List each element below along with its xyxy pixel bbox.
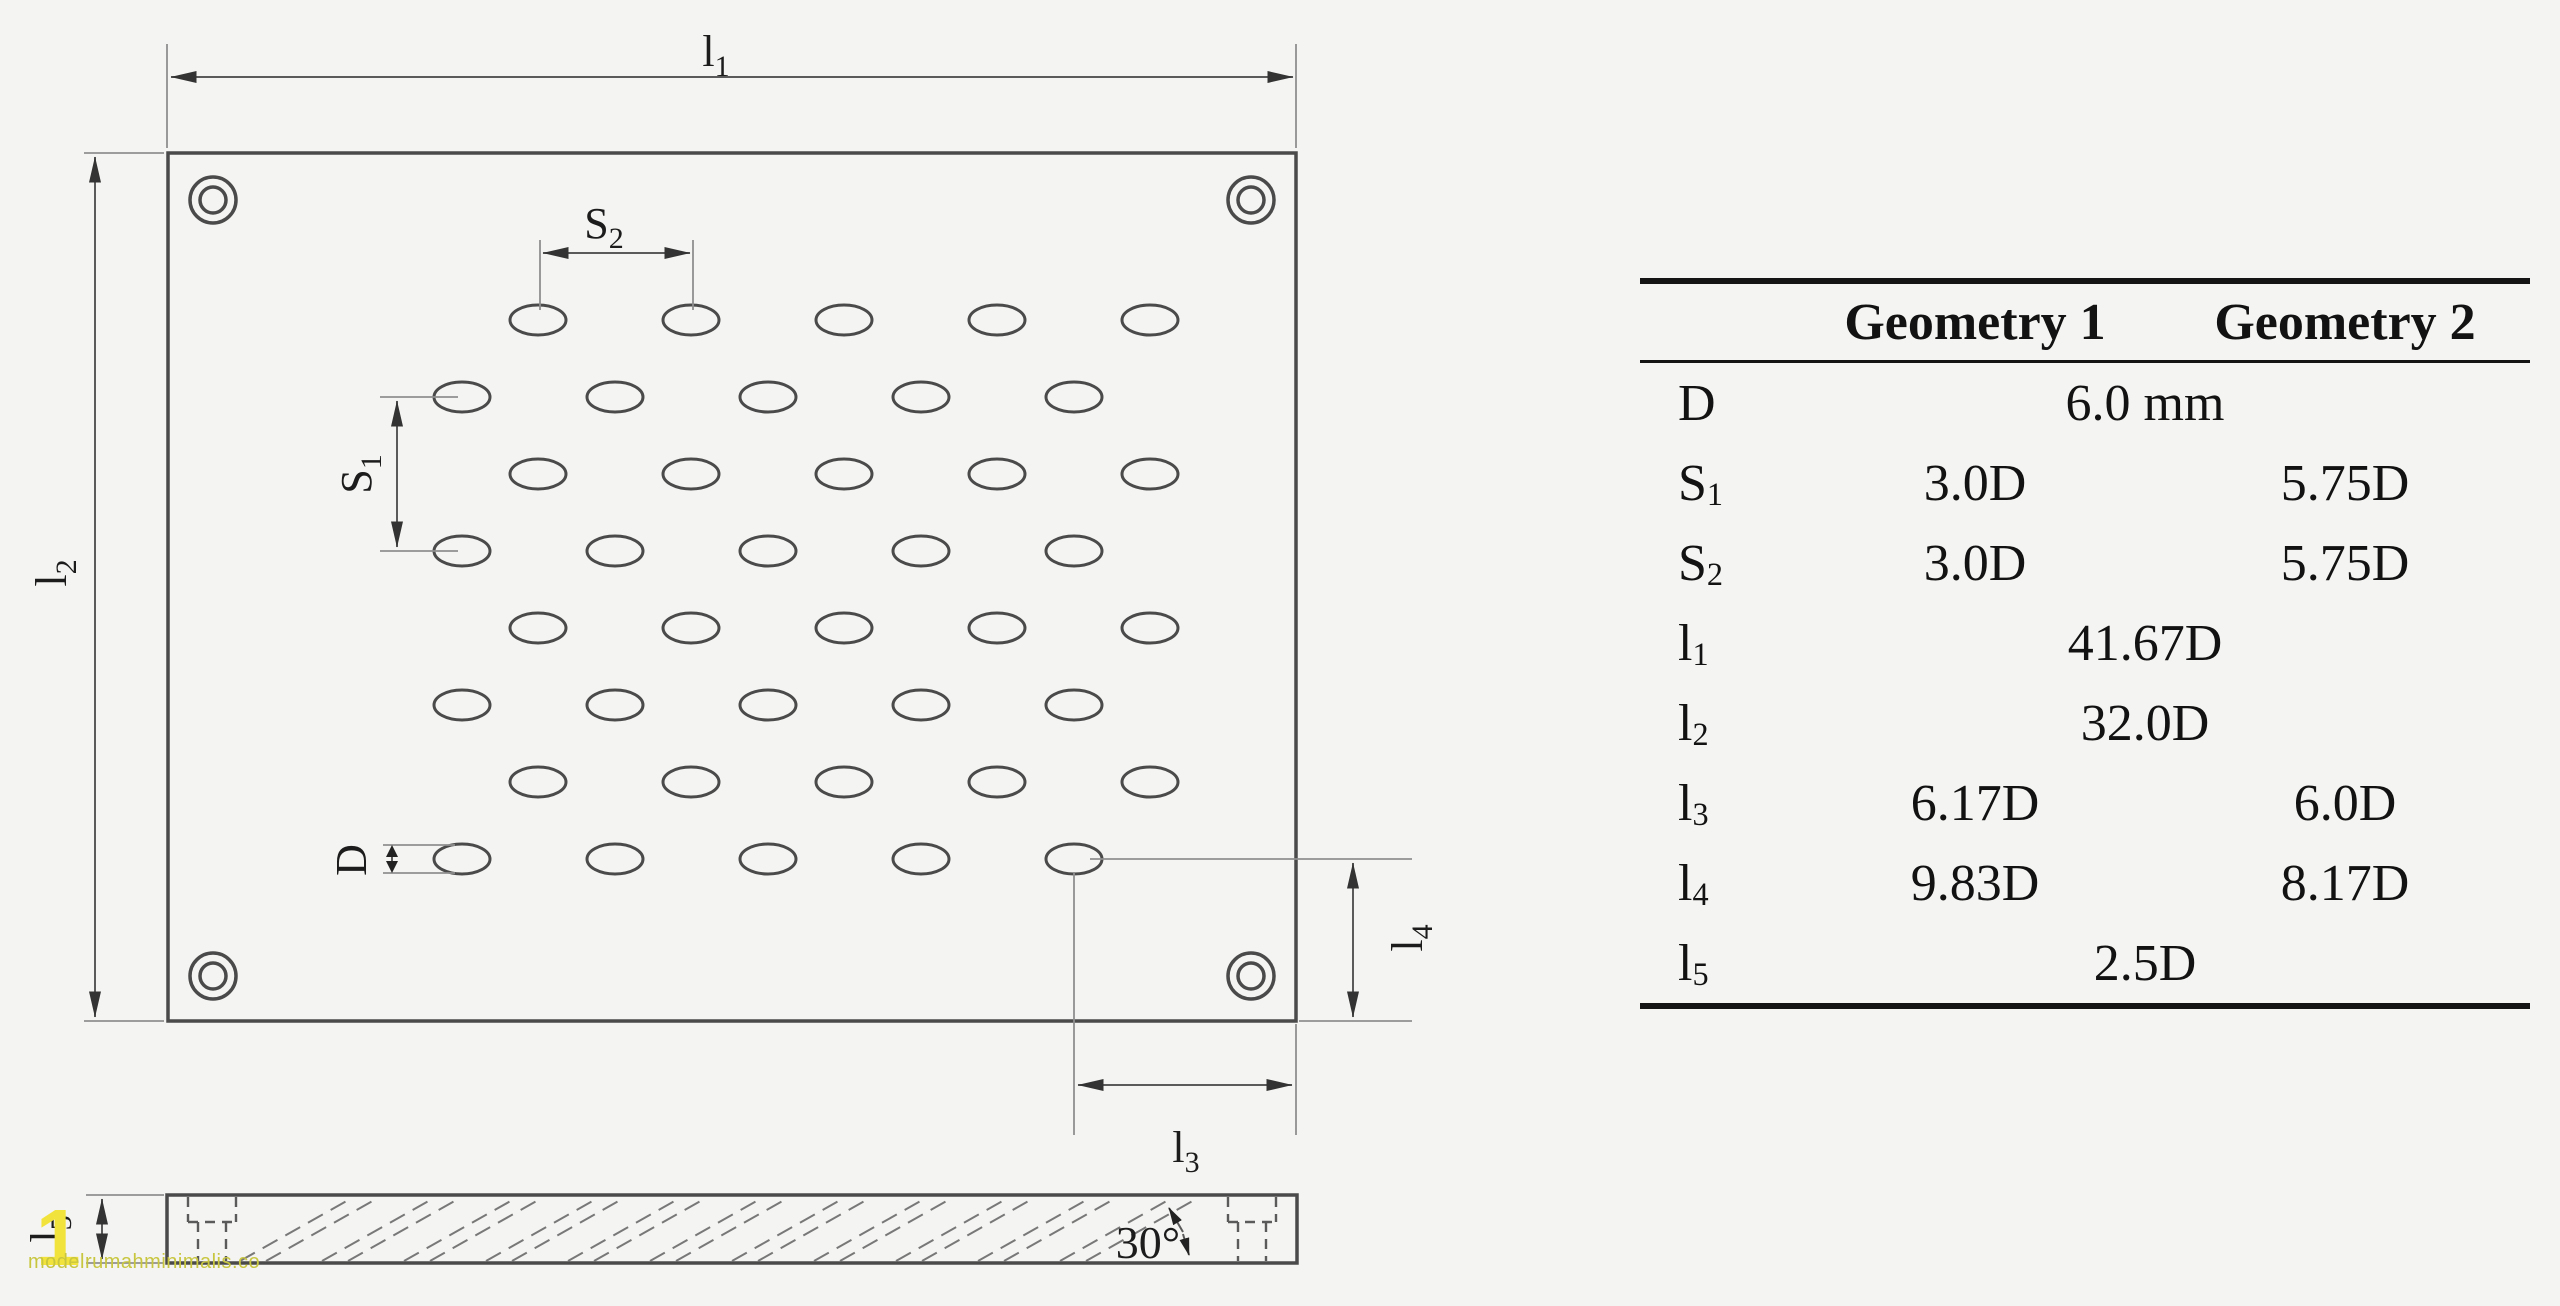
row-label-subscript: 1: [1692, 636, 1708, 672]
cell-geometry1-value: 3.0D: [1790, 534, 2160, 593]
dim-s1: S1: [332, 397, 458, 551]
table-row: l52.5D: [1640, 923, 2530, 1003]
row-label-subscript: 2: [1707, 556, 1723, 592]
plate-hole: [587, 382, 643, 412]
plate-outline: [168, 153, 1296, 1021]
plate-hole: [1122, 767, 1178, 797]
dim-l3-l4: l4 l3: [1074, 859, 1439, 1179]
row-label: l1: [1640, 614, 1790, 673]
angle-label: 30°: [1116, 1217, 1180, 1268]
hole-grid: [434, 305, 1178, 874]
watermark-url: modelrumahminimalis.co: [28, 1251, 260, 1274]
plate-hole: [1046, 382, 1102, 412]
hatch-line: [404, 1198, 516, 1261]
plate-hole: [1122, 613, 1178, 643]
plate-hole: [663, 613, 719, 643]
plate-hole: [816, 613, 872, 643]
dim-label-s1: S1: [332, 454, 388, 493]
cell-geometry2-value: 5.75D: [2160, 454, 2530, 513]
technical-drawing: l1 l2 S2 S1 D: [0, 0, 1560, 1306]
row-label-subscript: 1: [1707, 476, 1723, 512]
row-label: l3: [1640, 774, 1790, 833]
section-hatching: [240, 1198, 1198, 1261]
row-label: l5: [1640, 934, 1790, 993]
table-row: l232.0D: [1640, 683, 2530, 763]
row-label-subscript: 4: [1692, 876, 1708, 912]
plate-hole: [816, 305, 872, 335]
dim-label-s2: S2: [584, 199, 623, 255]
cell-geometry1-value: 6.17D: [1790, 774, 2160, 833]
plate-hole: [510, 459, 566, 489]
hatch-line: [568, 1198, 680, 1261]
hatch-line: [650, 1198, 762, 1261]
hatch-line: [322, 1198, 434, 1261]
row-label-subscript: 5: [1692, 956, 1708, 992]
plate-hole: [510, 305, 566, 335]
hatch-line: [676, 1198, 788, 1261]
dim-label-l4: l4: [1383, 924, 1439, 951]
dim-l1: l1: [167, 27, 1296, 148]
cell-shared-value: 6.0 mm: [1790, 374, 2530, 433]
hatch-line: [732, 1198, 844, 1261]
page: l1 l2 S2 S1 D: [0, 0, 2560, 1306]
hatch-line: [896, 1198, 1008, 1261]
plate-hole: [893, 536, 949, 566]
plate-hole: [969, 767, 1025, 797]
cell-geometry1-value: 3.0D: [1790, 454, 2160, 513]
plate-hole: [663, 305, 719, 335]
hatch-line: [266, 1198, 378, 1261]
row-label: l4: [1640, 854, 1790, 913]
row-label-subscript: 3: [1692, 796, 1708, 832]
cell-shared-value: 32.0D: [1790, 694, 2530, 753]
plate-hole: [740, 382, 796, 412]
plate-hole: [969, 613, 1025, 643]
plate-hole: [893, 844, 949, 874]
plate-hole: [510, 767, 566, 797]
dim-s2: S2: [540, 199, 693, 310]
hatch-line: [758, 1198, 870, 1261]
plate-hole: [893, 382, 949, 412]
table-row: l49.83D8.17D: [1640, 843, 2530, 923]
hatch-line: [840, 1198, 952, 1261]
plate-hole: [816, 459, 872, 489]
row-label: S1: [1640, 454, 1790, 513]
plate-hole: [434, 844, 490, 874]
header-geometry2: Geometry 2: [2160, 293, 2530, 352]
plate-hole: [740, 844, 796, 874]
hatch-line: [922, 1198, 1034, 1261]
dim-l2: l2: [27, 153, 164, 1021]
hatch-line: [978, 1198, 1090, 1261]
hatch-line: [594, 1198, 706, 1261]
table-row: D6.0 mm: [1640, 363, 2530, 443]
plate-hole: [740, 536, 796, 566]
table-row: l36.17D6.0D: [1640, 763, 2530, 843]
plate-hole: [816, 767, 872, 797]
row-label: l2: [1640, 694, 1790, 753]
hatch-line: [348, 1198, 460, 1261]
angle-callout: 30°: [1116, 1208, 1189, 1268]
cell-geometry2-value: 5.75D: [2160, 534, 2530, 593]
plate-hole: [1122, 459, 1178, 489]
cell-geometry2-value: 6.0D: [2160, 774, 2530, 833]
dim-label-l3: l3: [1172, 1123, 1199, 1179]
hatch-line: [430, 1198, 542, 1261]
row-label-subscript: 2: [1692, 716, 1708, 752]
plate-hole: [1122, 305, 1178, 335]
cell-geometry2-value: 8.17D: [2160, 854, 2530, 913]
table-row: l141.67D: [1640, 603, 2530, 683]
cell-shared-value: 41.67D: [1790, 614, 2530, 673]
cell-shared-value: 2.5D: [1790, 934, 2530, 993]
table-body: D6.0 mmS13.0D5.75DS23.0D5.75Dl141.67Dl23…: [1640, 363, 2530, 1003]
plate-hole: [587, 536, 643, 566]
hatch-line: [1004, 1198, 1116, 1261]
countersink-right: [1228, 1197, 1276, 1261]
plate-hole: [969, 459, 1025, 489]
plate-hole: [740, 690, 796, 720]
row-label: D: [1640, 374, 1790, 433]
plate-hole: [434, 690, 490, 720]
hatch-line: [486, 1198, 598, 1261]
plate-hole: [1046, 690, 1102, 720]
dim-label-l1: l1: [702, 27, 729, 83]
table-row: S23.0D5.75D: [1640, 523, 2530, 603]
plate-hole: [663, 459, 719, 489]
plate-hole: [1046, 536, 1102, 566]
table-rule-bottom: [1640, 1003, 2530, 1009]
plate-hole: [587, 844, 643, 874]
table-header-row: Geometry 1 Geometry 2: [1640, 284, 2530, 360]
table-row: S13.0D5.75D: [1640, 443, 2530, 523]
plate-hole: [663, 767, 719, 797]
plate-hole: [893, 690, 949, 720]
plate-hole: [587, 690, 643, 720]
plate-hole: [969, 305, 1025, 335]
dim-label-l2: l2: [27, 559, 83, 586]
row-label: S2: [1640, 534, 1790, 593]
header-geometry1: Geometry 1: [1790, 293, 2160, 352]
hatch-line: [512, 1198, 624, 1261]
cell-geometry1-value: 9.83D: [1790, 854, 2160, 913]
hatch-line: [814, 1198, 926, 1261]
dim-label-d: D: [327, 844, 376, 876]
plate-hole: [510, 613, 566, 643]
geometry-table: Geometry 1 Geometry 2 D6.0 mmS13.0D5.75D…: [1640, 278, 2530, 1009]
dim-d: D: [327, 844, 455, 876]
